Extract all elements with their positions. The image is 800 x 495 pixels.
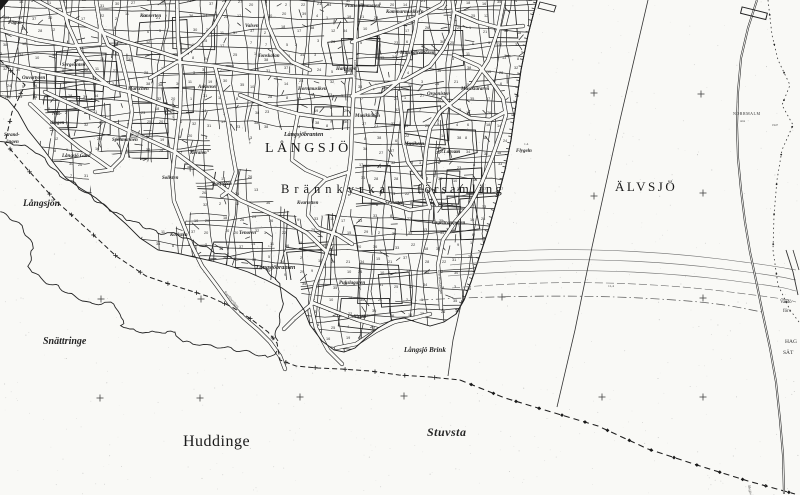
svg-text:17: 17 <box>81 17 85 21</box>
svg-text:Musikkåren: Musikkåren <box>354 114 380 119</box>
svg-text:17: 17 <box>341 219 345 223</box>
svg-text:31: 31 <box>361 176 365 180</box>
svg-text:4: 4 <box>456 123 458 127</box>
svg-text:Basfiolen: Basfiolen <box>211 182 232 187</box>
svg-text:37: 37 <box>209 2 213 6</box>
svg-text:32: 32 <box>515 43 519 47</box>
svg-text:33: 33 <box>498 162 502 166</box>
svg-text:17: 17 <box>405 29 409 33</box>
svg-text:30: 30 <box>344 120 348 124</box>
svg-text:22: 22 <box>468 255 472 259</box>
svg-text:26: 26 <box>223 256 227 260</box>
svg-text:25: 25 <box>147 120 151 124</box>
svg-text:29: 29 <box>300 270 304 274</box>
svg-text:29: 29 <box>252 215 256 219</box>
svg-text:23: 23 <box>457 166 461 170</box>
svg-text:Musikläraren: Musikläraren <box>460 87 490 92</box>
svg-text:13: 13 <box>502 56 506 60</box>
svg-text:7: 7 <box>279 125 281 129</box>
svg-text:3: 3 <box>488 41 490 45</box>
svg-text:2: 2 <box>295 43 297 47</box>
svg-text:6: 6 <box>376 70 378 74</box>
svg-text:20: 20 <box>249 3 253 7</box>
svg-text:21: 21 <box>346 260 350 264</box>
svg-text:38: 38 <box>467 66 471 70</box>
svg-text:5: 5 <box>286 43 288 47</box>
svg-text:12: 12 <box>146 40 150 44</box>
svg-text:8: 8 <box>438 161 440 165</box>
svg-text:10: 10 <box>35 56 39 60</box>
svg-text:22: 22 <box>442 260 446 264</box>
svg-text:34: 34 <box>327 3 331 7</box>
svg-text:13: 13 <box>406 269 410 273</box>
svg-text:11: 11 <box>161 230 165 234</box>
svg-text:30: 30 <box>223 79 227 83</box>
svg-text:6: 6 <box>472 42 474 46</box>
svg-text:19: 19 <box>194 219 198 223</box>
svg-text:22: 22 <box>301 3 305 7</box>
svg-text:24: 24 <box>503 139 507 143</box>
svg-text:39: 39 <box>21 27 25 31</box>
svg-text:20: 20 <box>234 231 238 235</box>
svg-text:3: 3 <box>264 231 266 235</box>
svg-text:27: 27 <box>379 151 383 155</box>
svg-text:2: 2 <box>65 111 67 115</box>
svg-text:Konserten: Konserten <box>139 14 161 19</box>
svg-text:32: 32 <box>391 122 395 126</box>
svg-text:1.2: 1.2 <box>268 244 273 248</box>
svg-text:30: 30 <box>421 44 425 48</box>
svg-text:Marschen: Marschen <box>127 87 149 92</box>
svg-text:38: 38 <box>310 26 314 30</box>
svg-text:33: 33 <box>404 124 408 128</box>
svg-text:30: 30 <box>360 298 364 302</box>
svg-text:19: 19 <box>298 241 302 245</box>
svg-text:37: 37 <box>284 66 288 70</box>
svg-text:31: 31 <box>84 174 88 178</box>
svg-text:35: 35 <box>18 16 22 20</box>
svg-text:39: 39 <box>114 43 118 47</box>
svg-text:5: 5 <box>341 94 343 98</box>
svg-text:23: 23 <box>141 111 145 115</box>
svg-text:32: 32 <box>157 97 161 101</box>
svg-text:12: 12 <box>331 29 335 33</box>
svg-text:35: 35 <box>497 0 501 4</box>
svg-text:5: 5 <box>268 255 270 259</box>
svg-text:18: 18 <box>466 1 470 5</box>
svg-text:1: 1 <box>190 97 192 101</box>
svg-text:19: 19 <box>346 336 350 340</box>
svg-text:23: 23 <box>265 110 269 114</box>
svg-text:SÄT: SÄT <box>783 349 794 356</box>
svg-text:16: 16 <box>95 147 99 151</box>
svg-text:35: 35 <box>333 286 337 290</box>
svg-text:3: 3 <box>66 52 68 56</box>
svg-text:10: 10 <box>363 27 367 31</box>
svg-text:3: 3 <box>314 53 316 57</box>
svg-text:19: 19 <box>347 15 351 19</box>
svg-text:11: 11 <box>188 80 192 84</box>
svg-text:24: 24 <box>7 84 11 88</box>
svg-text:18: 18 <box>483 136 487 140</box>
svg-text:9: 9 <box>311 93 313 97</box>
svg-text:10: 10 <box>380 271 384 275</box>
svg-text:22: 22 <box>407 217 411 221</box>
svg-text:Cellisten: Cellisten <box>348 315 366 320</box>
svg-text:Snättringe: Snättringe <box>43 336 87 347</box>
svg-text:5: 5 <box>192 110 194 114</box>
svg-text:17: 17 <box>359 163 363 167</box>
svg-text:26: 26 <box>425 26 429 30</box>
svg-text:32: 32 <box>99 121 103 125</box>
svg-text:Pianostämmaren: Pianostämmaren <box>345 4 381 9</box>
svg-text:36: 36 <box>285 244 289 248</box>
svg-text:31: 31 <box>452 258 456 262</box>
svg-text:28: 28 <box>144 71 148 75</box>
svg-text:13: 13 <box>128 57 132 61</box>
svg-text:36: 36 <box>266 201 270 205</box>
svg-text:3: 3 <box>202 68 204 72</box>
svg-text:Solisten: Solisten <box>162 176 179 181</box>
svg-text:Organisten: Organisten <box>427 92 450 97</box>
svg-text:29: 29 <box>408 84 412 88</box>
svg-text:38: 38 <box>363 147 367 151</box>
svg-text:Spelmannen: Spelmannen <box>112 138 138 143</box>
svg-text:5: 5 <box>360 41 362 45</box>
svg-text:Näs-: Näs- <box>51 112 62 117</box>
svg-text:11: 11 <box>466 52 470 56</box>
svg-text:10: 10 <box>250 85 254 89</box>
svg-text:skogen: skogen <box>49 121 65 126</box>
svg-text:26: 26 <box>269 219 273 223</box>
svg-text:25: 25 <box>450 41 454 45</box>
svg-text:39: 39 <box>83 95 87 99</box>
svg-text:15: 15 <box>347 231 351 235</box>
svg-text:18: 18 <box>281 25 285 29</box>
svg-text:21: 21 <box>378 298 382 302</box>
svg-text:33: 33 <box>395 246 399 250</box>
svg-text:31: 31 <box>207 124 211 128</box>
svg-text:14: 14 <box>403 3 407 7</box>
svg-text:5: 5 <box>437 122 439 126</box>
svg-text:33: 33 <box>358 219 362 223</box>
svg-text:11: 11 <box>220 31 224 35</box>
svg-text:38: 38 <box>156 242 160 246</box>
svg-text:38: 38 <box>254 121 258 125</box>
svg-text:7: 7 <box>70 174 72 178</box>
svg-text:förs: förs <box>783 309 791 314</box>
svg-text:1: 1 <box>109 108 111 112</box>
svg-text:4: 4 <box>407 71 409 75</box>
svg-text:32: 32 <box>146 148 150 152</box>
svg-text:Musikdirektören: Musikdirektören <box>399 51 435 56</box>
svg-text:29: 29 <box>364 230 368 234</box>
svg-text:38: 38 <box>3 43 7 47</box>
svg-text:28: 28 <box>374 16 378 20</box>
svg-text:28: 28 <box>68 94 72 98</box>
svg-text:8: 8 <box>473 163 475 167</box>
svg-text:17: 17 <box>221 120 225 124</box>
svg-text:32: 32 <box>203 203 207 207</box>
svg-text:10: 10 <box>347 270 351 274</box>
svg-text:30: 30 <box>115 2 119 6</box>
svg-text:14: 14 <box>161 0 165 4</box>
svg-text:38: 38 <box>146 82 150 86</box>
svg-text:3: 3 <box>452 57 454 61</box>
svg-text:3: 3 <box>419 161 421 165</box>
svg-text:26: 26 <box>202 191 206 195</box>
svg-text:18: 18 <box>517 31 521 35</box>
svg-text:Koristen: Koristen <box>169 233 188 238</box>
svg-text:Långsjö Gård: Långsjö Gård <box>61 154 91 159</box>
svg-text:14: 14 <box>202 109 206 113</box>
svg-text:28: 28 <box>331 260 335 264</box>
svg-text:37: 37 <box>239 245 243 249</box>
svg-text:26: 26 <box>33 84 37 88</box>
svg-text:1: 1 <box>346 57 348 61</box>
svg-text:14: 14 <box>441 134 445 138</box>
svg-text:35: 35 <box>380 56 384 60</box>
svg-text:2: 2 <box>115 17 117 21</box>
svg-text:29: 29 <box>311 228 315 232</box>
svg-text:32: 32 <box>409 285 413 289</box>
svg-text:18: 18 <box>486 123 490 127</box>
svg-text:6: 6 <box>467 123 469 127</box>
svg-text:28: 28 <box>38 29 42 33</box>
svg-text:32: 32 <box>3 67 7 71</box>
svg-text:LÅNGSJÖ: LÅNGSJÖ <box>265 139 352 156</box>
svg-text:26: 26 <box>390 314 394 318</box>
svg-text:17: 17 <box>220 44 224 48</box>
svg-text:Sergeanten: Sergeanten <box>62 63 86 68</box>
svg-text:22: 22 <box>411 243 415 247</box>
svg-text:23: 23 <box>5 16 9 20</box>
svg-text:6: 6 <box>472 233 474 237</box>
svg-text:35: 35 <box>470 97 474 101</box>
svg-text:30: 30 <box>16 68 20 72</box>
svg-text:7: 7 <box>265 43 267 47</box>
svg-text:5: 5 <box>22 85 24 89</box>
svg-text:1: 1 <box>326 16 328 20</box>
svg-text:21: 21 <box>454 80 458 84</box>
svg-text:27: 27 <box>131 1 135 5</box>
svg-text:34: 34 <box>343 29 347 33</box>
svg-text:14: 14 <box>348 296 352 300</box>
svg-text:23: 23 <box>394 41 398 45</box>
svg-text:28: 28 <box>224 15 228 19</box>
svg-text:7: 7 <box>440 205 442 209</box>
svg-text:26: 26 <box>435 82 439 86</box>
svg-text:30: 30 <box>69 162 73 166</box>
svg-text:Ouvertyren: Ouvertyren <box>22 76 46 81</box>
svg-text:3: 3 <box>454 285 456 289</box>
svg-text:Långsjöbranten: Långsjöbranten <box>283 131 324 138</box>
svg-text:30: 30 <box>372 309 376 313</box>
svg-text:6: 6 <box>48 107 50 111</box>
svg-text:21: 21 <box>388 260 392 264</box>
svg-text:8: 8 <box>330 106 332 110</box>
svg-text:6: 6 <box>500 82 502 86</box>
svg-text:10: 10 <box>329 298 333 302</box>
svg-text:8: 8 <box>376 203 378 207</box>
svg-text:Pukslagaren: Pukslagaren <box>339 281 365 286</box>
svg-text:21: 21 <box>483 30 487 34</box>
svg-text:NORRMALM: NORRMALM <box>733 111 761 116</box>
svg-text:30: 30 <box>48 16 52 20</box>
svg-text:Kvartetten: Kvartetten <box>296 201 319 206</box>
svg-text:Sextetten: Sextetten <box>385 201 404 206</box>
svg-text:1: 1 <box>470 241 472 245</box>
svg-text:22: 22 <box>282 231 286 235</box>
svg-text:5: 5 <box>331 70 333 74</box>
svg-text:24: 24 <box>481 217 485 221</box>
svg-text:Långsjöbranten: Långsjöbranten <box>255 264 296 271</box>
svg-text:8: 8 <box>192 56 194 60</box>
svg-text:27: 27 <box>362 122 366 126</box>
svg-text:26: 26 <box>331 40 335 44</box>
svg-text:36: 36 <box>392 232 396 236</box>
svg-text:34: 34 <box>360 260 364 264</box>
svg-text:34: 34 <box>423 283 427 287</box>
svg-text:7: 7 <box>67 121 69 125</box>
svg-text:34: 34 <box>280 260 284 264</box>
svg-text:28: 28 <box>97 137 101 141</box>
svg-text:27: 27 <box>420 94 424 98</box>
svg-text:Tonskalan: Tonskalan <box>258 54 280 59</box>
svg-text:8: 8 <box>172 244 174 248</box>
svg-text:8: 8 <box>390 214 392 218</box>
svg-text:9: 9 <box>311 269 313 273</box>
svg-text:3: 3 <box>205 136 207 140</box>
svg-text:22: 22 <box>84 68 88 72</box>
svg-text:9: 9 <box>457 243 459 247</box>
svg-text:27: 27 <box>486 97 490 101</box>
svg-text:30: 30 <box>438 177 442 181</box>
svg-text:6: 6 <box>408 108 410 112</box>
svg-text:30: 30 <box>425 270 429 274</box>
svg-text:8: 8 <box>410 201 412 205</box>
svg-text:6: 6 <box>114 26 116 30</box>
svg-text:3: 3 <box>250 136 252 140</box>
svg-text:21: 21 <box>360 15 364 19</box>
svg-text:32: 32 <box>330 80 334 84</box>
svg-text:Flygeln: Flygeln <box>516 149 532 154</box>
svg-text:32: 32 <box>395 108 399 112</box>
svg-text:16: 16 <box>326 337 330 341</box>
svg-text:3: 3 <box>193 71 195 75</box>
svg-text:38: 38 <box>457 136 461 140</box>
svg-text:1: 1 <box>66 148 68 152</box>
svg-text:2: 2 <box>378 231 380 235</box>
svg-text:9: 9 <box>297 218 299 222</box>
svg-text:27: 27 <box>238 0 242 4</box>
svg-text:38: 38 <box>377 136 381 140</box>
svg-text:17: 17 <box>221 177 225 181</box>
svg-text:8: 8 <box>451 203 453 207</box>
svg-text:24: 24 <box>204 57 208 61</box>
svg-text:8: 8 <box>236 97 238 101</box>
svg-text:14: 14 <box>203 14 207 18</box>
svg-text:8: 8 <box>115 52 117 56</box>
svg-text:28: 28 <box>425 260 429 264</box>
svg-text:Orgeltramparen: Orgeltramparen <box>432 221 466 226</box>
svg-text:ängen: ängen <box>6 140 19 145</box>
svg-text:22: 22 <box>405 192 409 196</box>
svg-text:Långsjön: Långsjön <box>22 198 60 209</box>
svg-text:37: 37 <box>32 17 36 21</box>
svg-text:37: 37 <box>390 149 394 153</box>
svg-text:10: 10 <box>52 53 56 57</box>
svg-text:13: 13 <box>423 228 427 232</box>
svg-text:18: 18 <box>424 247 428 251</box>
svg-text:12: 12 <box>235 202 239 206</box>
svg-text:11: 11 <box>125 12 129 16</box>
svg-text:28: 28 <box>499 71 503 75</box>
svg-text:25: 25 <box>233 53 237 57</box>
svg-text:28: 28 <box>268 95 272 99</box>
svg-text:37: 37 <box>191 230 195 234</box>
svg-text:Hornmusiken: Hornmusiken <box>297 87 327 92</box>
svg-text:8: 8 <box>517 57 519 61</box>
svg-text:20: 20 <box>282 12 286 16</box>
svg-text:20: 20 <box>159 120 163 124</box>
svg-text:39: 39 <box>252 258 256 262</box>
svg-text:31: 31 <box>100 4 104 8</box>
svg-text:26: 26 <box>487 111 491 115</box>
svg-text:16: 16 <box>482 2 486 6</box>
svg-text:13: 13 <box>254 188 258 192</box>
svg-text:2: 2 <box>406 298 408 302</box>
svg-text:32: 32 <box>484 152 488 156</box>
svg-text:26: 26 <box>78 163 82 167</box>
svg-text:1: 1 <box>404 96 406 100</box>
svg-text:Musikern: Musikern <box>403 142 424 147</box>
svg-text:33: 33 <box>482 205 486 209</box>
svg-text:8: 8 <box>465 136 467 140</box>
svg-text:32: 32 <box>84 123 88 127</box>
svg-text:32: 32 <box>192 122 196 126</box>
svg-text:4: 4 <box>207 149 209 153</box>
svg-text:31: 31 <box>203 94 207 98</box>
svg-text:4: 4 <box>298 125 300 129</box>
svg-text:38: 38 <box>255 111 259 115</box>
svg-text:19: 19 <box>314 109 318 113</box>
svg-text:Långsjö Brink: Långsjö Brink <box>403 346 446 354</box>
svg-text:1: 1 <box>254 52 256 56</box>
svg-text:32: 32 <box>391 161 395 165</box>
svg-text:2: 2 <box>285 3 287 7</box>
svg-text:34: 34 <box>19 53 23 57</box>
svg-text:24: 24 <box>317 68 321 72</box>
svg-text:12: 12 <box>54 137 58 141</box>
svg-text:22: 22 <box>405 134 409 138</box>
svg-text:Kammarmusikern: Kammarmusikern <box>385 10 424 15</box>
svg-text:17: 17 <box>297 97 301 101</box>
svg-text:11: 11 <box>95 67 99 71</box>
svg-text:21: 21 <box>377 165 381 169</box>
svg-text:38: 38 <box>158 83 162 87</box>
svg-text:3: 3 <box>317 39 319 43</box>
svg-text:33: 33 <box>358 85 362 89</box>
svg-text:Fagon: Fagon <box>8 21 22 26</box>
svg-text:30: 30 <box>454 271 458 275</box>
svg-text:4: 4 <box>347 325 349 329</box>
svg-text:20: 20 <box>357 245 361 249</box>
svg-text:Strand-: Strand- <box>4 133 20 138</box>
svg-text:Stuvsta: Stuvsta <box>427 425 467 439</box>
svg-text:34: 34 <box>94 94 98 98</box>
svg-text:21: 21 <box>374 124 378 128</box>
